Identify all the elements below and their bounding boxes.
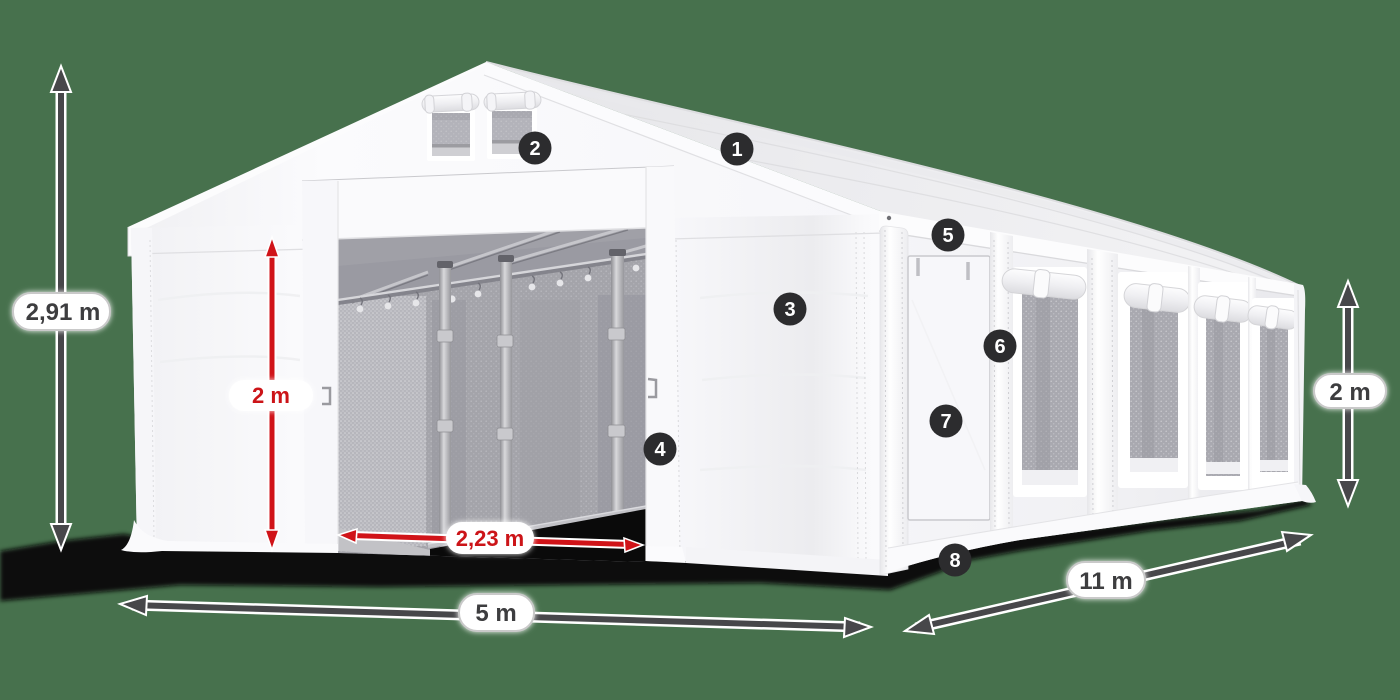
svg-text:6: 6	[994, 336, 1005, 358]
svg-text:2: 2	[529, 138, 540, 160]
svg-text:5: 5	[942, 225, 953, 247]
svg-text:8: 8	[949, 550, 960, 572]
svg-text:11 m: 11 m	[1079, 568, 1132, 595]
svg-text:2,91 m: 2,91 m	[26, 299, 101, 326]
svg-text:2 m: 2 m	[1329, 379, 1370, 406]
svg-text:5 m: 5 m	[475, 600, 516, 627]
svg-text:3: 3	[784, 299, 795, 321]
svg-text:4: 4	[654, 439, 666, 461]
svg-text:2 m: 2 m	[252, 383, 290, 408]
svg-text:7: 7	[940, 411, 951, 433]
svg-text:1: 1	[731, 139, 742, 161]
svg-text:2,23 m: 2,23 m	[456, 526, 525, 551]
